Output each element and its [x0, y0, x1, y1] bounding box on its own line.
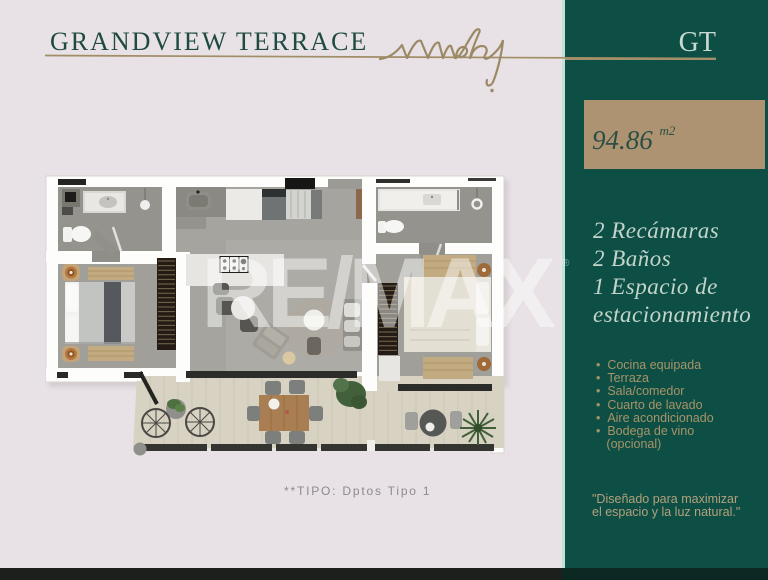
svg-text:®: ® — [562, 258, 570, 269]
svg-text:RE/MAX: RE/MAX — [201, 237, 556, 348]
